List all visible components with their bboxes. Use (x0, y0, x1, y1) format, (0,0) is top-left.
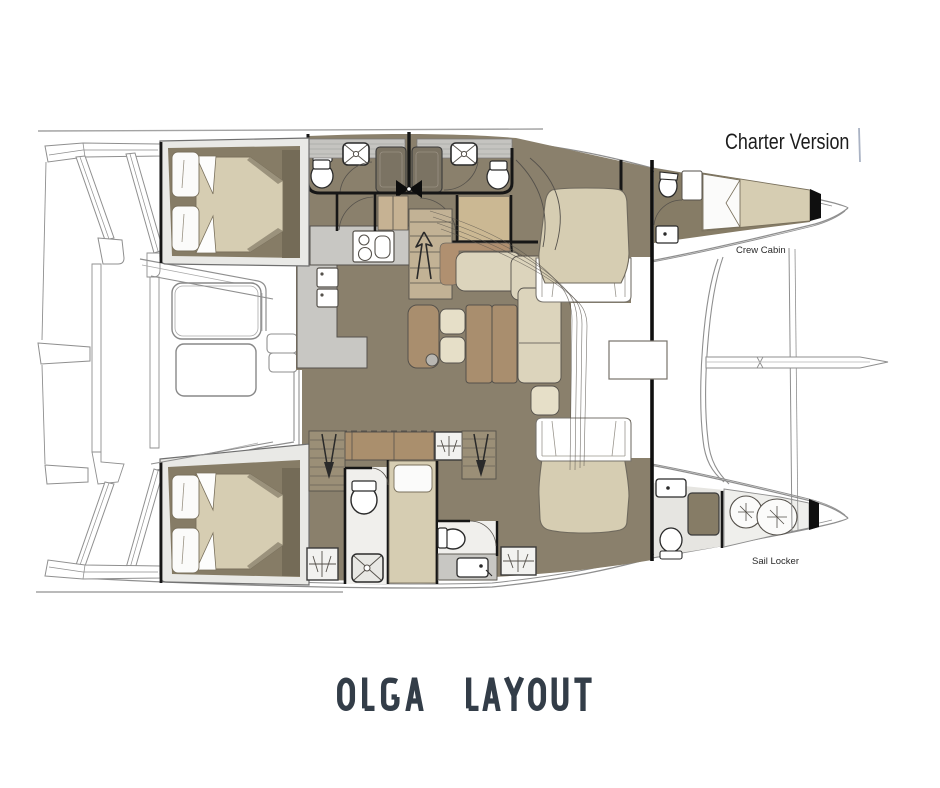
svg-text:Sail Locker: Sail Locker (752, 556, 799, 567)
svg-text:Charter Version: Charter Version (725, 130, 849, 154)
svg-text:Crew Cabin: Crew Cabin (736, 245, 786, 256)
